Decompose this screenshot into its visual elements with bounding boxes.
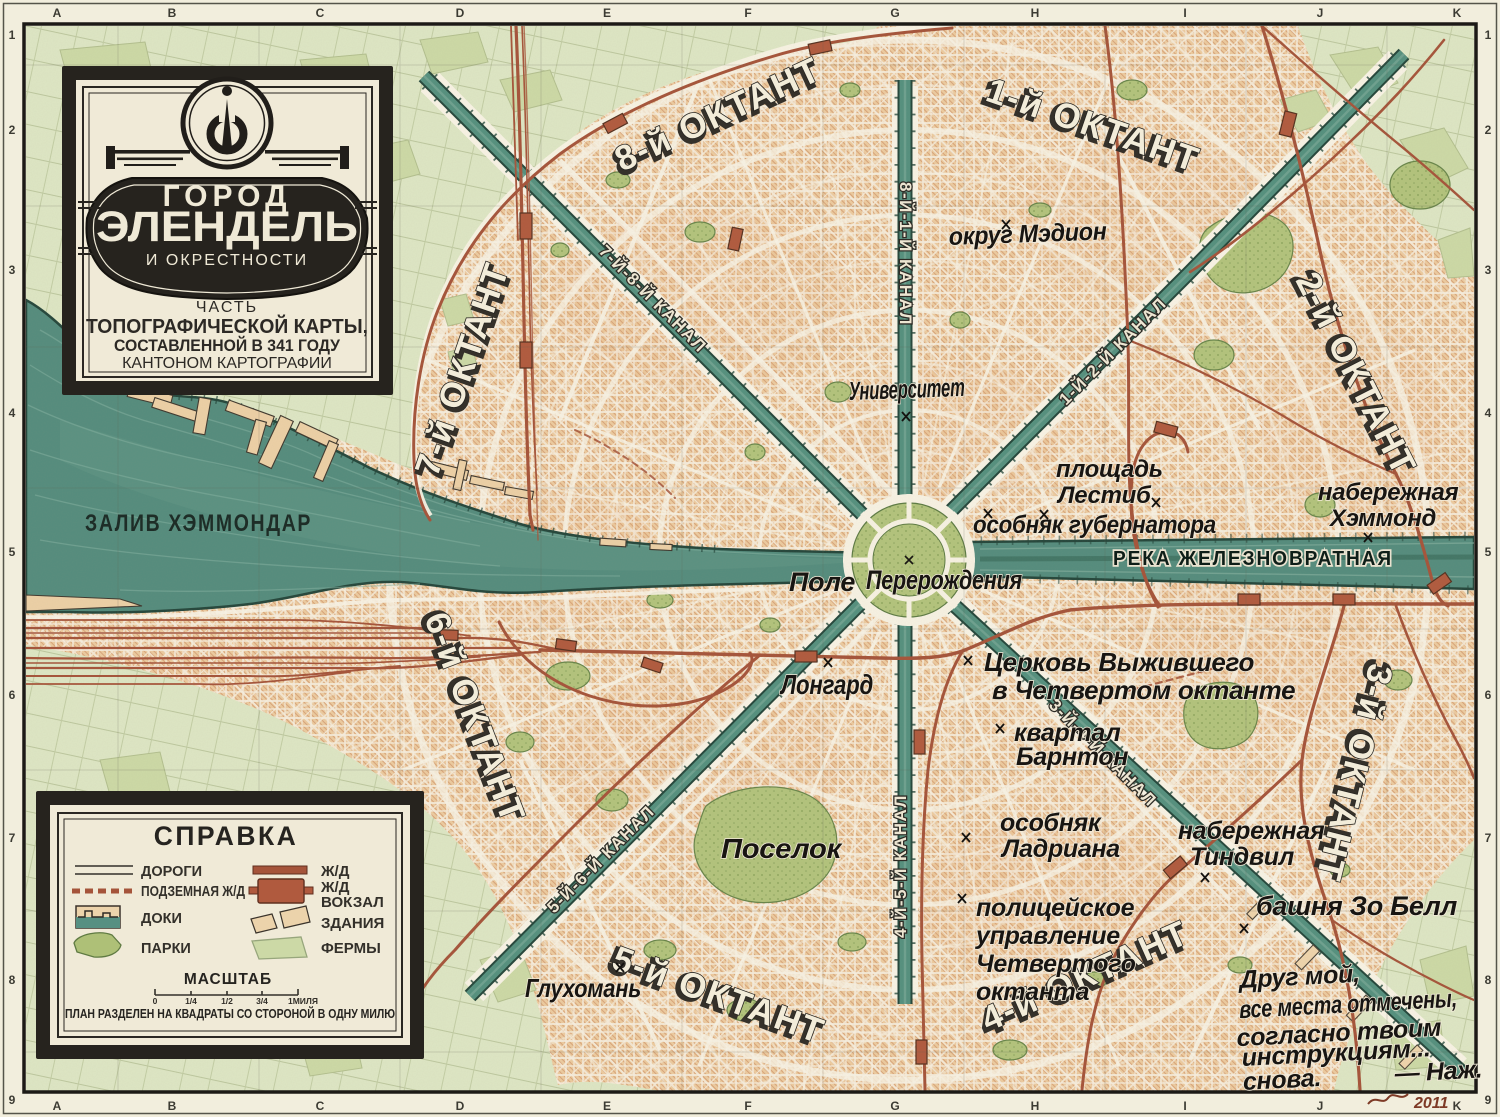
svg-text:СПРАВКА: СПРАВКА [154,821,299,851]
svg-text:1: 1 [9,28,16,42]
svg-text:2: 2 [1485,123,1492,137]
svg-text:D: D [456,6,465,20]
svg-text:Перерождения: Перерождения [866,565,1022,595]
svg-text:1/4: 1/4 [185,996,197,1006]
svg-text:H: H [1031,6,1040,20]
svg-text:1: 1 [1485,28,1492,42]
svg-text:E: E [603,1099,611,1113]
svg-text:J: J [1317,1099,1324,1113]
svg-text:Ж/Д: Ж/Д [320,863,350,880]
svg-text:Поле: Поле [789,567,855,597]
svg-text:2: 2 [9,123,16,137]
svg-text:1/2: 1/2 [221,996,233,1006]
svg-text:2011: 2011 [1413,1095,1449,1112]
svg-text:Церковь Выжившего: Церковь Выжившего [984,647,1254,677]
svg-text:ДОКИ: ДОКИ [141,911,182,927]
svg-text:A: A [53,1099,62,1113]
svg-text:C: C [316,6,325,20]
svg-text:Хэммонд: Хэммонд [1328,505,1436,532]
svg-text:ПОДЗЕМНАЯ Ж/Д: ПОДЗЕМНАЯ Ж/Д [141,884,246,900]
svg-text:8: 8 [9,973,16,987]
svg-text:5: 5 [9,545,16,559]
svg-text:ЭЛЕНДЕЛЬ: ЭЛЕНДЕЛЬ [96,203,358,251]
svg-text:G: G [890,6,899,20]
svg-text:ЗАЛИВ ХЭММОНДАР: ЗАЛИВ ХЭММОНДАР [85,510,312,537]
svg-text:7: 7 [1485,831,1492,845]
svg-text:октанта: октанта [976,978,1090,1006]
svg-text:И ОКРЕСТНОСТИ: И ОКРЕСТНОСТИ [146,252,308,269]
svg-text:H: H [1031,1099,1040,1113]
svg-text:Лестиб: Лестиб [1056,482,1152,509]
svg-text:— Наж.: — Наж. [1393,1055,1483,1088]
svg-text:7: 7 [9,831,16,845]
svg-text:набережная: набережная [1178,817,1325,845]
svg-text:F: F [744,6,751,20]
svg-text:E: E [603,6,611,20]
svg-text:набережная: набережная [1318,479,1459,506]
svg-text:0: 0 [153,996,158,1006]
svg-text:4: 4 [9,406,16,420]
svg-text:Тиндвил: Тиндвил [1190,843,1295,871]
svg-text:башня Зо Белл: башня Зо Белл [1256,891,1457,921]
svg-text:в Четвертом октанте: в Четвертом октанте [992,675,1295,705]
svg-text:6: 6 [9,688,16,702]
svg-text:Университет: Университет [848,372,965,406]
svg-text:3/4: 3/4 [256,996,268,1006]
svg-text:КАНТОНОМ КАРТОГРАФИИ: КАНТОНОМ КАРТОГРАФИИ [122,355,332,372]
svg-text:G: G [890,1099,899,1113]
svg-text:6: 6 [1485,688,1492,702]
svg-text:8: 8 [1485,973,1492,987]
svg-text:3: 3 [9,263,16,277]
svg-text:управление: управление [974,922,1120,950]
svg-text:особняк: особняк [1000,809,1102,837]
svg-text:округ Мэдион: округ Мэдион [948,217,1107,251]
svg-text:ФЕРМЫ: ФЕРМЫ [321,940,381,957]
svg-text:I: I [1183,1099,1186,1113]
svg-text:МАСШТАБ: МАСШТАБ [184,971,272,988]
svg-text:9: 9 [9,1093,16,1107]
svg-text:D: D [456,1099,465,1113]
svg-text:СОСТАВЛЕННОЙ В 341 ГОДУ: СОСТАВЛЕННОЙ В 341 ГОДУ [114,336,341,355]
svg-text:полицейское: полицейское [976,894,1135,922]
svg-text:Барнтон: Барнтон [1016,743,1128,771]
svg-text:особняк губернатора: особняк губернатора [973,511,1216,539]
svg-text:8-Й-1-Й КАНАЛ: 8-Й-1-Й КАНАЛ [896,182,915,326]
svg-text:ВОКЗАЛ: ВОКЗАЛ [321,894,384,911]
svg-text:9: 9 [1485,1093,1492,1107]
svg-text:Четвертого: Четвертого [976,950,1136,978]
svg-text:A: A [53,6,62,20]
svg-text:1МИЛЯ: 1МИЛЯ [288,996,318,1006]
svg-text:Лонгард: Лонгард [779,669,873,700]
svg-text:Ладриана: Ладриана [1000,835,1120,863]
svg-text:K: K [1453,1099,1462,1113]
svg-text:РЕКА ЖЕЛЕЗНОВРАТНАЯ: РЕКА ЖЕЛЕЗНОВРАТНАЯ [1113,548,1393,570]
svg-text:B: B [168,6,177,20]
svg-text:4-Й-5-Й КАНАЛ: 4-Й-5-Й КАНАЛ [891,794,910,938]
svg-text:K: K [1453,6,1462,20]
svg-text:3: 3 [1485,263,1492,277]
svg-text:J: J [1317,6,1324,20]
svg-text:I: I [1183,6,1186,20]
svg-text:ДОРОГИ: ДОРОГИ [141,864,202,880]
svg-text:площадь: площадь [1056,456,1163,483]
svg-text:Глухомань: Глухомань [525,973,641,1003]
svg-text:ЧАСТЬ: ЧАСТЬ [196,299,258,316]
svg-text:5: 5 [1485,545,1492,559]
svg-text:ЗДАНИЯ: ЗДАНИЯ [321,915,384,932]
svg-text:ПАРКИ: ПАРКИ [141,941,191,957]
svg-text:снова.: снова. [1242,1064,1321,1096]
svg-text:ТОПОГРАФИЧЕСКОЙ КАРТЫ,: ТОПОГРАФИЧЕСКОЙ КАРТЫ, [86,314,368,338]
svg-text:4: 4 [1485,406,1492,420]
svg-text:C: C [316,1099,325,1113]
svg-text:Поселок: Поселок [721,833,843,864]
svg-text:B: B [168,1099,177,1113]
svg-text:ПЛАН РАЗДЕЛЕН НА КВАДРАТЫ СО С: ПЛАН РАЗДЕЛЕН НА КВАДРАТЫ СО СТОРОНОЙ В … [65,1006,395,1021]
svg-text:F: F [744,1099,751,1113]
